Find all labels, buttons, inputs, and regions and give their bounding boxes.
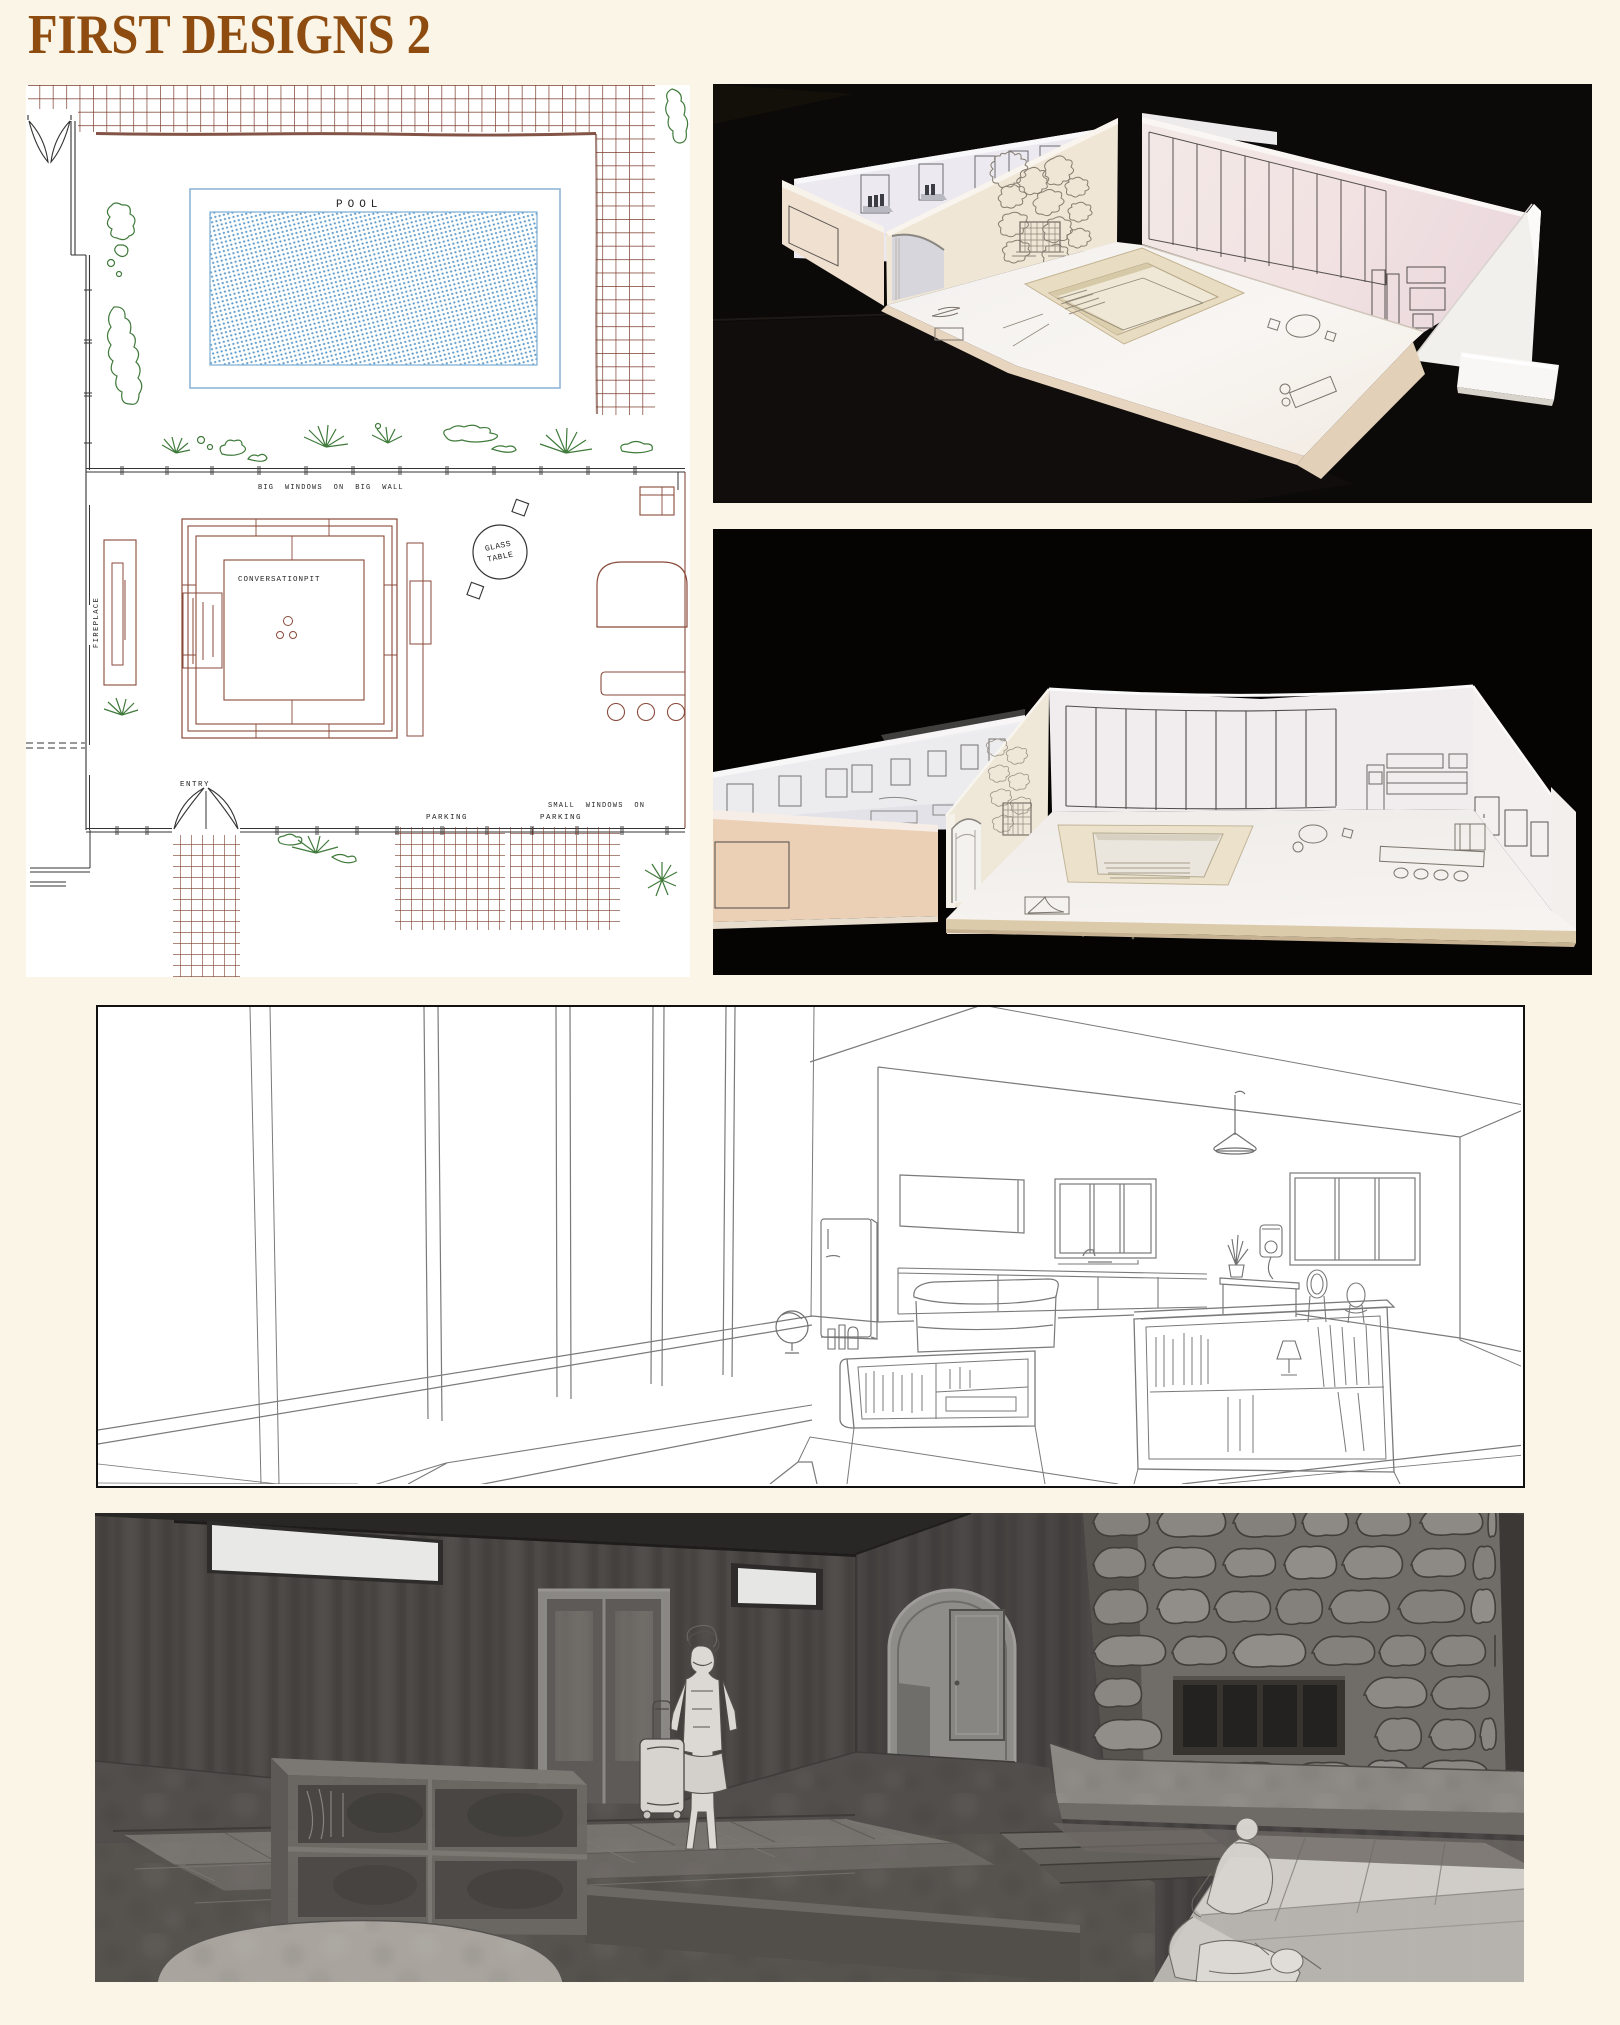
svg-text:SMALL WINDOWS ON: SMALL WINDOWS ON [548, 802, 645, 810]
svg-text:FIREPLACE: FIREPLACE [93, 597, 101, 648]
svg-text:ENTRY: ENTRY [180, 781, 210, 789]
svg-text:CONVERSATIONPIT: CONVERSATIONPIT [238, 576, 321, 584]
svg-text:BIG WINDOWS ON BIG WALL: BIG WINDOWS ON BIG WALL [258, 484, 404, 492]
svg-text:POOL: POOL [336, 199, 382, 211]
svg-text:PARKING: PARKING [426, 814, 468, 822]
svg-text:PARKING: PARKING [540, 814, 582, 822]
